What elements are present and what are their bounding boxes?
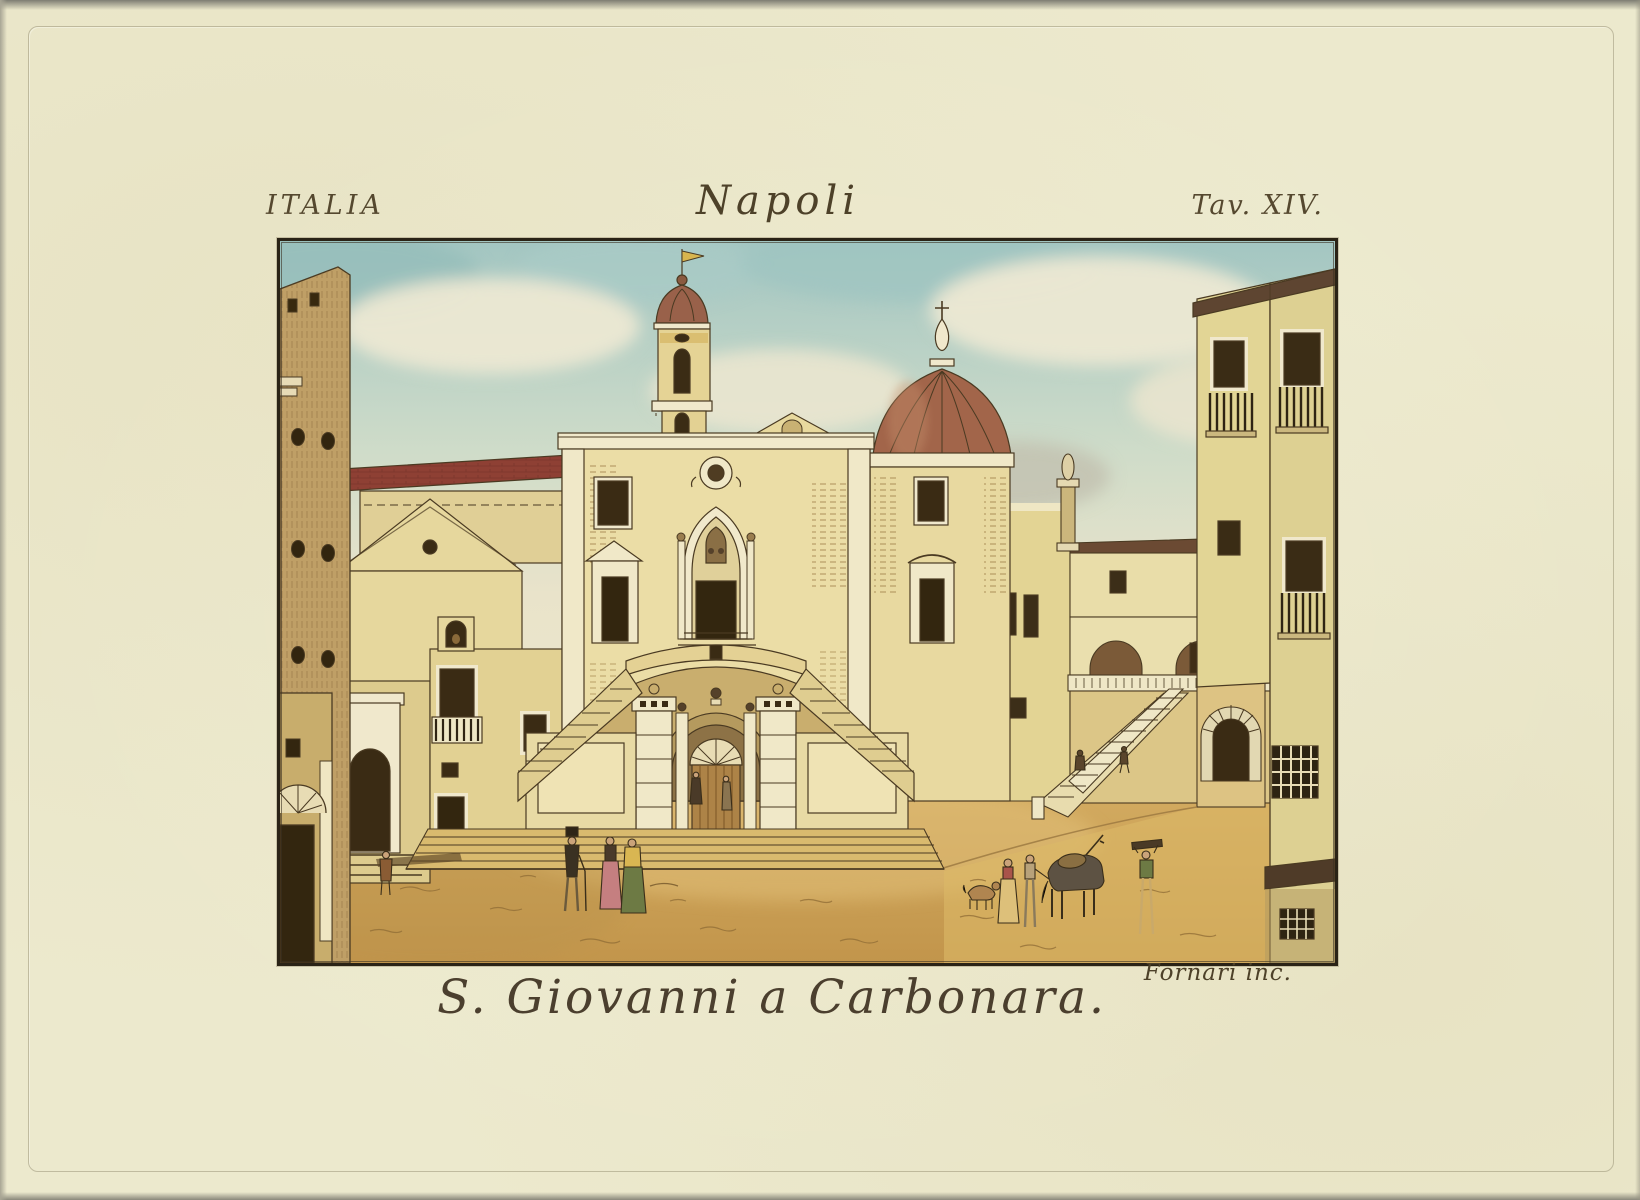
front-steps [406,829,944,869]
scan-edge-right [1635,0,1640,1200]
engraver-credit: Fornari inc. [1144,960,1292,986]
engraving-frame [277,238,1338,966]
plate-number-label: Tav. XIV. [1192,190,1324,221]
paper-background: ITALIA Napoli Tav. XIV. [0,0,1640,1200]
scan-edge-left [0,0,7,1200]
scan-edge-top [0,0,1640,10]
left-tower [280,267,350,963]
city-label: Napoli [696,178,860,224]
artwork-title: S. Giovanni a Carbonara. [437,970,1107,1025]
scan-edge-bottom [0,1192,1640,1200]
region-label: ITALIA [266,190,385,221]
engraving-scene [280,241,1335,963]
